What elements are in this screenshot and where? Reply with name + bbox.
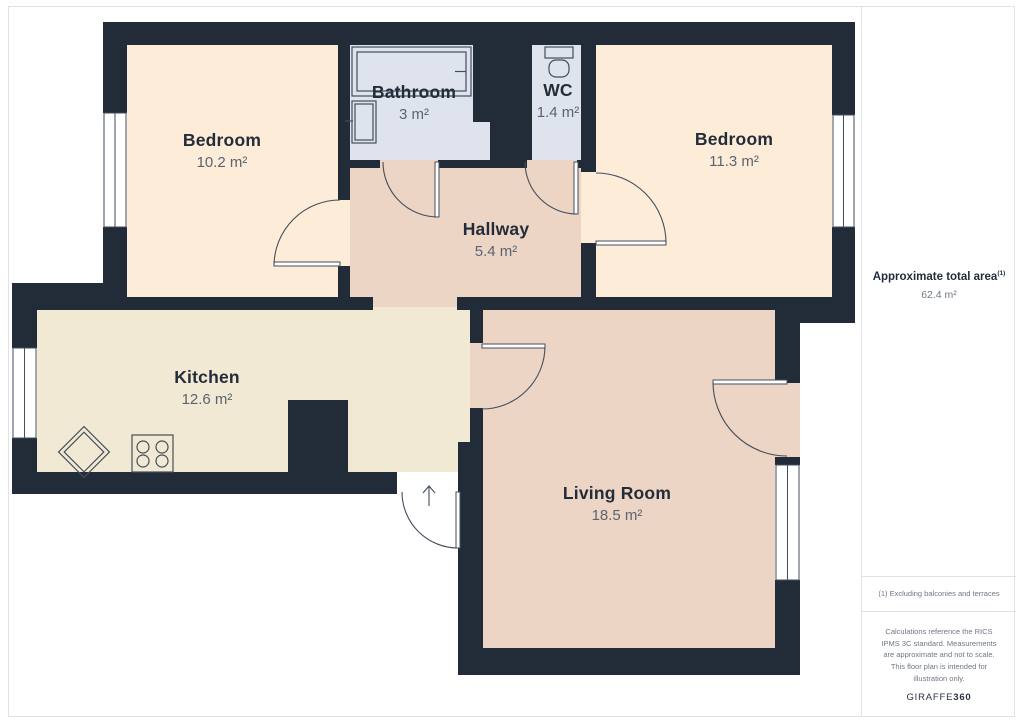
total-area-label: Approximate total area(1) <box>862 270 1016 283</box>
label-bedroom-right: Bedroom 11.3 m² <box>695 129 773 170</box>
label-wc: WC 1.4 m² <box>537 80 580 121</box>
label-living-room: Living Room 18.5 m² <box>563 483 671 524</box>
room-area: 3 m² <box>372 106 456 123</box>
room-kitchen <box>37 307 470 472</box>
label-bathroom: Bathroom 3 m² <box>372 82 456 123</box>
brand-bold: 360 <box>953 692 971 703</box>
room-area: 11.3 m² <box>695 153 773 170</box>
floorplan-page: Bedroom 10.2 m² Bathroom 3 m² WC 1.4 m² … <box>0 0 1024 724</box>
room-area: 18.5 m² <box>563 507 671 524</box>
label-hallway: Hallway 5.4 m² <box>463 219 530 260</box>
brand-regular: GIRAFFE <box>906 692 953 703</box>
label-kitchen: Kitchen 12.6 m² <box>174 367 240 408</box>
room-name: Bathroom <box>372 82 456 103</box>
room-name: Hallway <box>463 219 530 240</box>
room-bathroom-nook <box>473 122 490 162</box>
window-bedroom-right <box>833 115 854 227</box>
room-area: 12.6 m² <box>174 391 240 408</box>
window-kitchen <box>13 348 36 438</box>
total-area-value: 62.4 m² <box>862 289 1016 301</box>
room-name: Kitchen <box>174 367 240 388</box>
room-area: 10.2 m² <box>183 154 261 171</box>
room-name: Bedroom <box>695 129 773 150</box>
footnote-text: (1) Excluding balconies and terraces <box>862 576 1016 598</box>
total-area-text: Approximate total area <box>873 271 998 283</box>
disclaimer-text: Calculations reference the RICS IPMS 3C … <box>862 611 1016 684</box>
room-name: Living Room <box>563 483 671 504</box>
door-entrance <box>402 486 460 548</box>
room-area: 5.4 m² <box>463 243 530 260</box>
label-bedroom-left: Bedroom 10.2 m² <box>183 130 261 171</box>
entrance-opening <box>397 472 458 494</box>
giraffe360-logo: GIRAFFE360 <box>862 692 1016 703</box>
room-name: Bedroom <box>183 130 261 151</box>
room-name: WC <box>537 80 580 101</box>
total-area-block: Approximate total area(1) 62.4 m² <box>862 270 1016 301</box>
total-area-footnote-marker: (1) <box>997 270 1005 277</box>
room-bedroom-left <box>127 45 338 297</box>
room-bedroom-right <box>596 45 832 297</box>
room-living <box>483 310 775 650</box>
room-area: 1.4 m² <box>537 104 580 121</box>
window-bedroom-left <box>104 113 126 227</box>
info-sidebar: Approximate total area(1) 62.4 m² (1) Ex… <box>861 6 1016 717</box>
window-living-room <box>776 465 799 580</box>
